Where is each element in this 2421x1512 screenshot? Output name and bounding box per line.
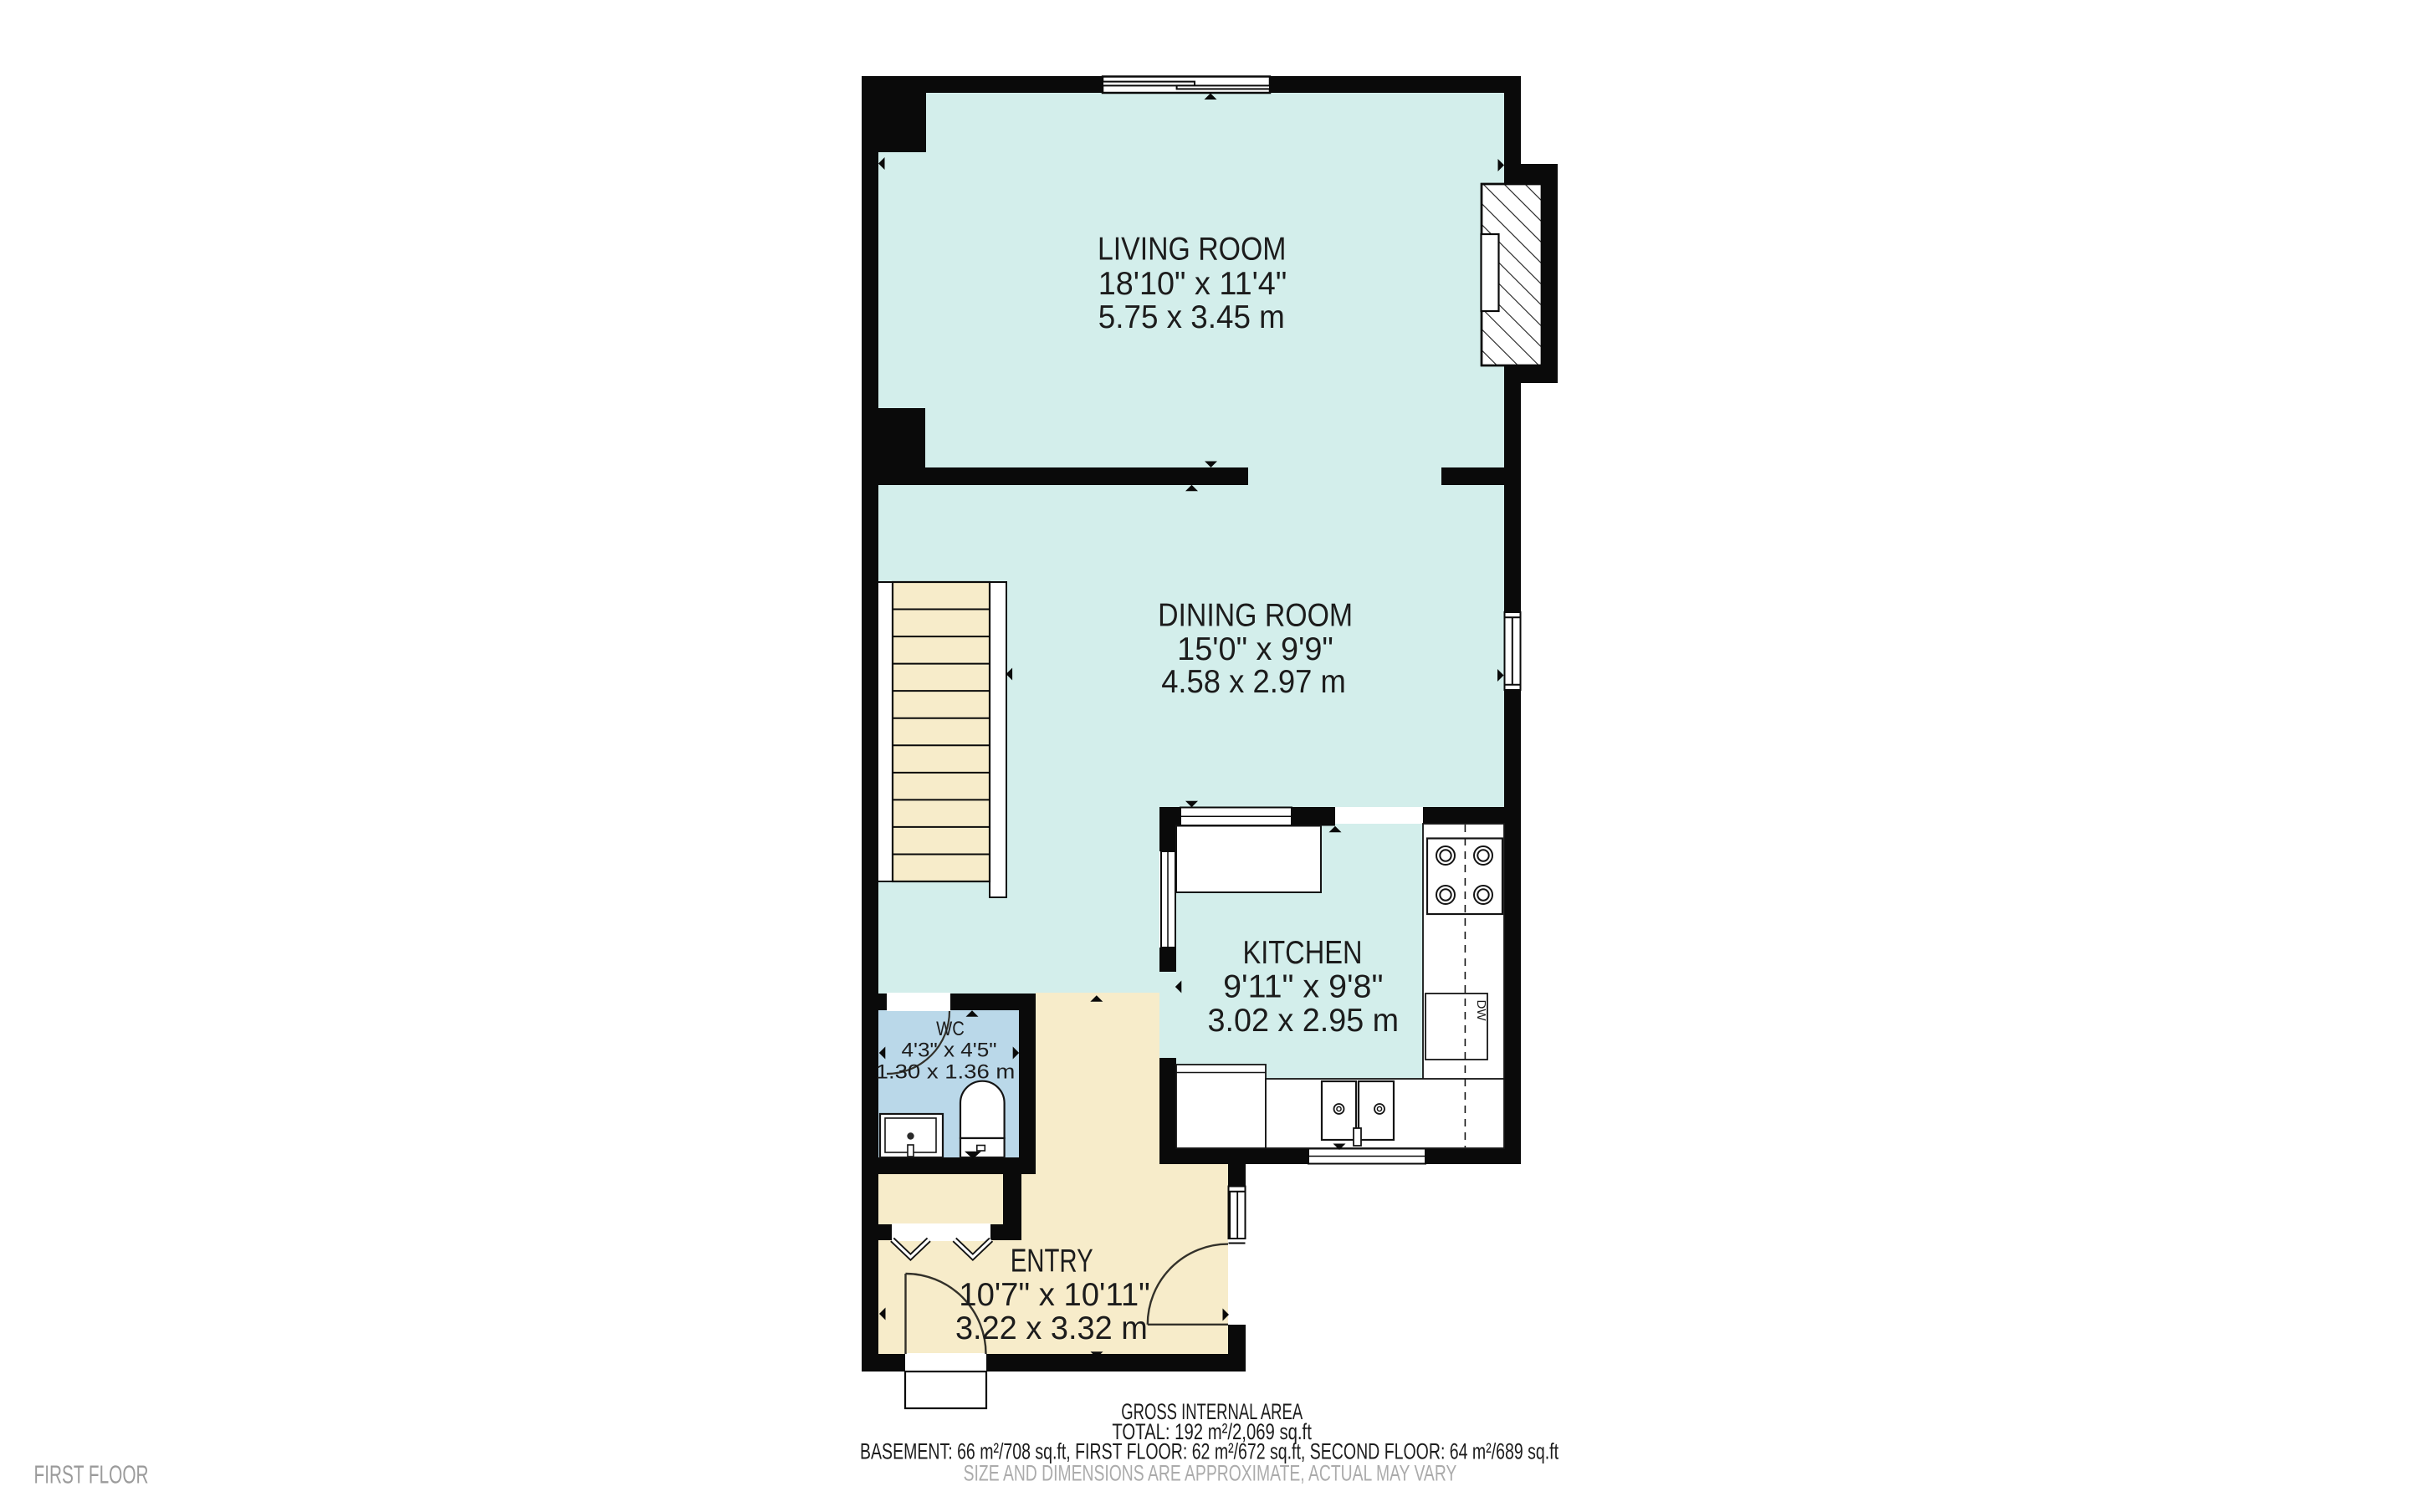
svg-text:DINING ROOM: DINING ROOM [1158, 597, 1353, 633]
svg-text:9'11" x 9'8": 9'11" x 9'8" [1223, 969, 1383, 1005]
svg-text:SIZE AND DIMENSIONS ARE APPROX: SIZE AND DIMENSIONS ARE APPROXIMATE, ACT… [964, 1461, 1457, 1486]
svg-text:KITCHEN: KITCHEN [1243, 935, 1363, 971]
svg-text:1.30 x 1.36 m: 1.30 x 1.36 m [876, 1060, 1016, 1083]
svg-text:10'7" x 10'11": 10'7" x 10'11" [959, 1277, 1149, 1313]
svg-text:3.22 x 3.32 m: 3.22 x 3.32 m [955, 1310, 1148, 1346]
svg-text:4.58 x 2.97 m: 4.58 x 2.97 m [1161, 664, 1346, 700]
svg-text:18'10" x 11'4": 18'10" x 11'4" [1098, 266, 1287, 302]
svg-text:WC: WC [936, 1018, 965, 1040]
svg-text:DW: DW [1474, 1000, 1488, 1022]
svg-text:3.02 x 2.95 m: 3.02 x 2.95 m [1208, 1003, 1400, 1039]
svg-text:4'3" x 4'5": 4'3" x 4'5" [902, 1039, 997, 1061]
svg-text:15'0" x 9'9": 15'0" x 9'9" [1177, 631, 1333, 667]
svg-text:FIRST FLOOR: FIRST FLOOR [34, 1461, 149, 1489]
svg-text:5.75 x 3.45 m: 5.75 x 3.45 m [1098, 299, 1285, 335]
svg-text:LIVING ROOM: LIVING ROOM [1098, 232, 1287, 268]
svg-text:ENTRY: ENTRY [1011, 1244, 1093, 1280]
